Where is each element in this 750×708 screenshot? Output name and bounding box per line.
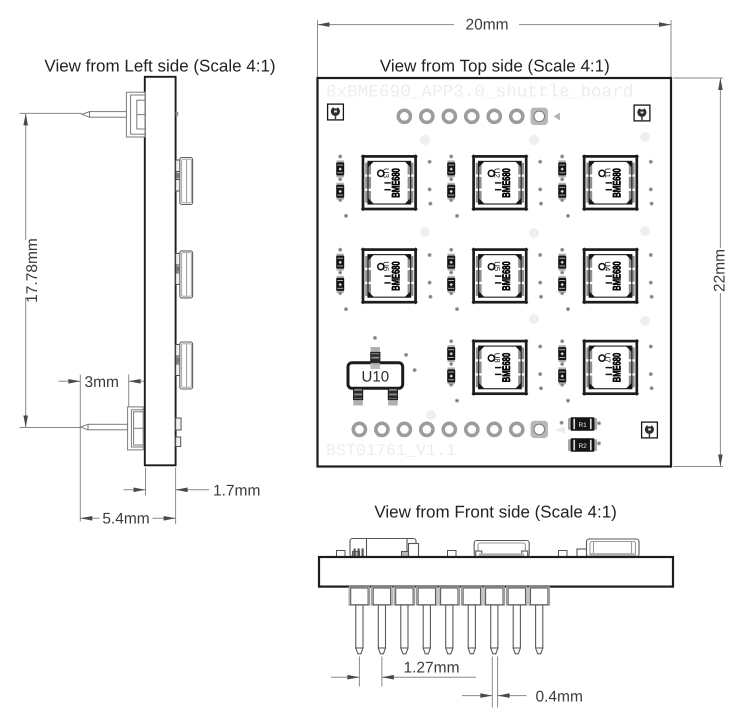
svg-text:20mm: 20mm <box>465 16 508 33</box>
svg-text:1.27mm: 1.27mm <box>404 660 460 677</box>
svg-text:BME680: BME680 <box>500 167 513 197</box>
svg-text:BME680: BME680 <box>611 261 624 291</box>
svg-text:17.78mm: 17.78mm <box>24 238 41 303</box>
svg-text:22mm: 22mm <box>711 249 728 292</box>
svg-text:BST01761_V1.1: BST01761_V1.1 <box>326 441 456 460</box>
svg-text:View from Top side (Scale 4:1): View from Top side (Scale 4:1) <box>380 57 610 76</box>
svg-text:8xBME690_APP3.0_shuttle_board: 8xBME690_APP3.0_shuttle_board <box>326 83 633 103</box>
svg-text:BME680: BME680 <box>389 167 402 197</box>
svg-text:R2: R2 <box>578 443 587 450</box>
svg-text:5.4mm: 5.4mm <box>102 511 149 528</box>
svg-text:0.4mm: 0.4mm <box>536 688 583 705</box>
svg-text:BME680: BME680 <box>389 261 402 291</box>
svg-text:View from Front side (Scale 4:: View from Front side (Scale 4:1) <box>374 503 617 522</box>
svg-text:BME680: BME680 <box>500 261 513 291</box>
svg-text:BME680: BME680 <box>611 167 624 197</box>
svg-text:3mm: 3mm <box>85 374 119 391</box>
svg-text:1.7mm: 1.7mm <box>213 482 260 499</box>
svg-text:BME680: BME680 <box>500 352 513 382</box>
svg-text:U10: U10 <box>362 368 390 385</box>
svg-text:View from Left side (Scale 4:1: View from Left side (Scale 4:1) <box>44 57 275 76</box>
svg-text:R1: R1 <box>578 422 587 429</box>
svg-text:BME680: BME680 <box>611 352 624 382</box>
